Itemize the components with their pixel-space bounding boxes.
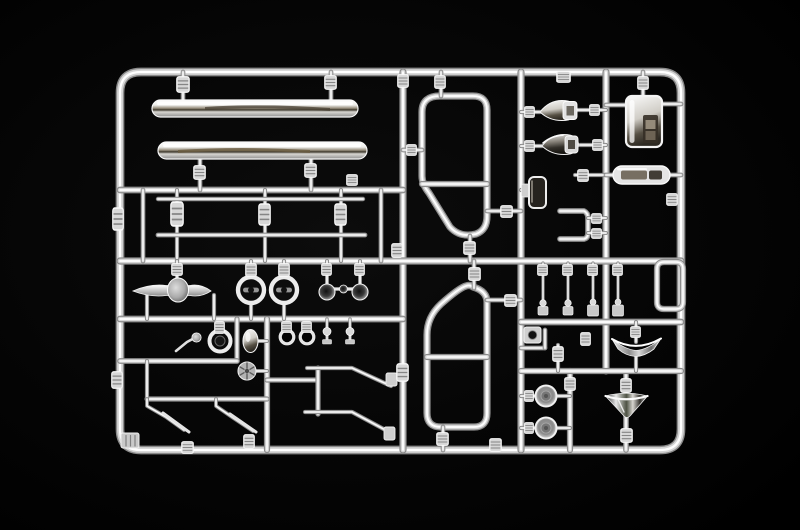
photo-canvas [0,0,800,530]
part-lamp-disc-upper [536,386,557,407]
part-mirror-back-plate [626,96,662,147]
part-headlight-bezel-left [238,277,264,303]
part-bumper-upper [152,100,358,117]
part-corner-box [121,433,139,448]
part-roof-light-bar [613,166,670,184]
part-ribbed-hub [238,362,256,380]
part-headlight-bezel-right [271,277,297,303]
part-lamp-disc-lower [536,418,557,439]
part-oval-lamp [243,330,258,353]
sprue-photo [0,0,800,530]
part-bumper-lower [158,142,367,159]
